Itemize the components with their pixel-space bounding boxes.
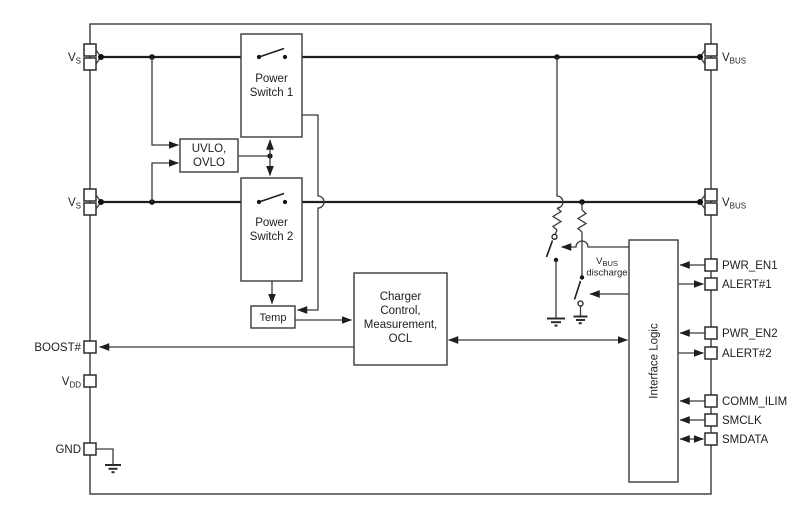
pin-vs1: VS <box>68 44 104 70</box>
pin-smdata: SMDATA <box>680 433 769 446</box>
pin-pwr-en2: PWR_EN2 <box>680 327 778 340</box>
uvlo-input-wires <box>152 57 179 202</box>
charger-label-line2: Control, <box>380 305 420 317</box>
svg-text:VBUS: VBUS <box>722 52 746 66</box>
svg-text:VS: VS <box>68 52 81 66</box>
svg-text:VDD: VDD <box>62 376 81 390</box>
vbus2-discharge-branch <box>574 202 588 323</box>
uvlo-ovlo-block: UVLO, OVLO <box>180 139 238 172</box>
discharge-switch-2-blade <box>575 281 581 300</box>
pin-vdd: VDD <box>62 375 96 390</box>
charger-label-line4: OCL <box>389 333 413 345</box>
pin-pwr-en1: PWR_EN1 <box>680 259 778 272</box>
pin-alert1: ALERT#1 <box>678 278 772 291</box>
alert2-label: ALERT#2 <box>722 348 772 360</box>
vbus-discharge-text-line2: discharge <box>586 268 627 279</box>
interface-logic-label: Interface Logic <box>649 323 661 399</box>
uvlo-label-line1: UVLO, <box>192 143 227 155</box>
comm-ilim-label: COMM_ILIM <box>722 396 787 408</box>
alert1-label: ALERT#1 <box>722 279 772 291</box>
gnd-label: GND <box>55 444 81 456</box>
charger-control-block: Charger Control, Measurement, OCL <box>354 273 447 365</box>
svg-text:VS: VS <box>68 197 81 211</box>
ground-symbol <box>547 319 565 326</box>
power-switch-1-label-line1: Power <box>255 73 288 85</box>
pin-vbus1: VBUS <box>697 44 746 70</box>
pin-boost: BOOST# <box>34 341 96 354</box>
gnd-tail-wire <box>96 449 113 464</box>
vdd-label-sub: DD <box>69 381 81 390</box>
discharge-riser-1 <box>557 57 563 208</box>
block-diagram-canvas: Power Switch 1 Power Switch 2 UVLO, OVLO… <box>0 0 795 516</box>
pwr-en1-label: PWR_EN1 <box>722 260 778 272</box>
power-switch-2-block: Power Switch 2 <box>241 178 302 281</box>
pin-gnd: GND <box>55 443 121 472</box>
temp-label: Temp <box>260 312 287 324</box>
vbus1-label-sub: BUS <box>730 57 746 66</box>
vs2-label-sub: S <box>76 202 81 211</box>
temp-block: Temp <box>251 306 295 328</box>
uvlo-label-line2: OVLO <box>193 157 225 169</box>
block-diagram: Power Switch 1 Power Switch 2 UVLO, OVLO… <box>0 0 795 516</box>
pwr-en2-label: PWR_EN2 <box>722 328 778 340</box>
boost-label: BOOST# <box>34 342 81 354</box>
interface-discharge1-control-wire <box>562 241 630 247</box>
svg-text:VBUS: VBUS <box>722 197 746 211</box>
discharge-resistor-1 <box>553 208 561 230</box>
switch-contact-circle <box>552 234 557 239</box>
charger-label-line3: Measurement, <box>364 319 438 331</box>
pin-comm-ilim: COMM_ILIM <box>680 395 787 408</box>
vs1-to-vbus1-power-rail <box>101 54 700 60</box>
switch-contact-circle <box>578 301 583 306</box>
uvlo-output-wires <box>238 140 273 176</box>
smclk-label: SMCLK <box>722 415 762 427</box>
power-switch-2-label-line2: Switch 2 <box>250 231 293 243</box>
pin-alert2: ALERT#2 <box>678 347 772 360</box>
ground-symbol <box>105 465 121 472</box>
vs2-to-vbus2-power-rail <box>101 199 700 205</box>
power-switch-1-block: Power Switch 1 <box>241 34 302 137</box>
pin-smclk: SMCLK <box>680 414 762 427</box>
svg-text:VBUS: VBUS <box>596 256 618 268</box>
discharge-switch-1-blade <box>547 241 553 258</box>
power-switch-2-label-line1: Power <box>255 217 288 229</box>
switch-terminal-dot <box>580 275 584 279</box>
interface-logic-block: Interface Logic <box>629 240 678 482</box>
smdata-label: SMDATA <box>722 434 769 446</box>
discharge-resistor-2 <box>578 210 586 232</box>
vbus-discharge-annotation: VBUS discharge <box>586 256 627 279</box>
vbus1-discharge-branch <box>547 57 566 326</box>
pin-vs2: VS <box>68 189 104 215</box>
vs1-label-sub: S <box>76 57 81 66</box>
power-switch-1-label-line2: Switch 1 <box>250 87 293 99</box>
vbus2-label-sub: BUS <box>730 202 746 211</box>
pin-vbus2: VBUS <box>697 189 746 215</box>
ground-symbol <box>574 317 588 324</box>
charger-label-line1: Charger <box>380 291 422 303</box>
